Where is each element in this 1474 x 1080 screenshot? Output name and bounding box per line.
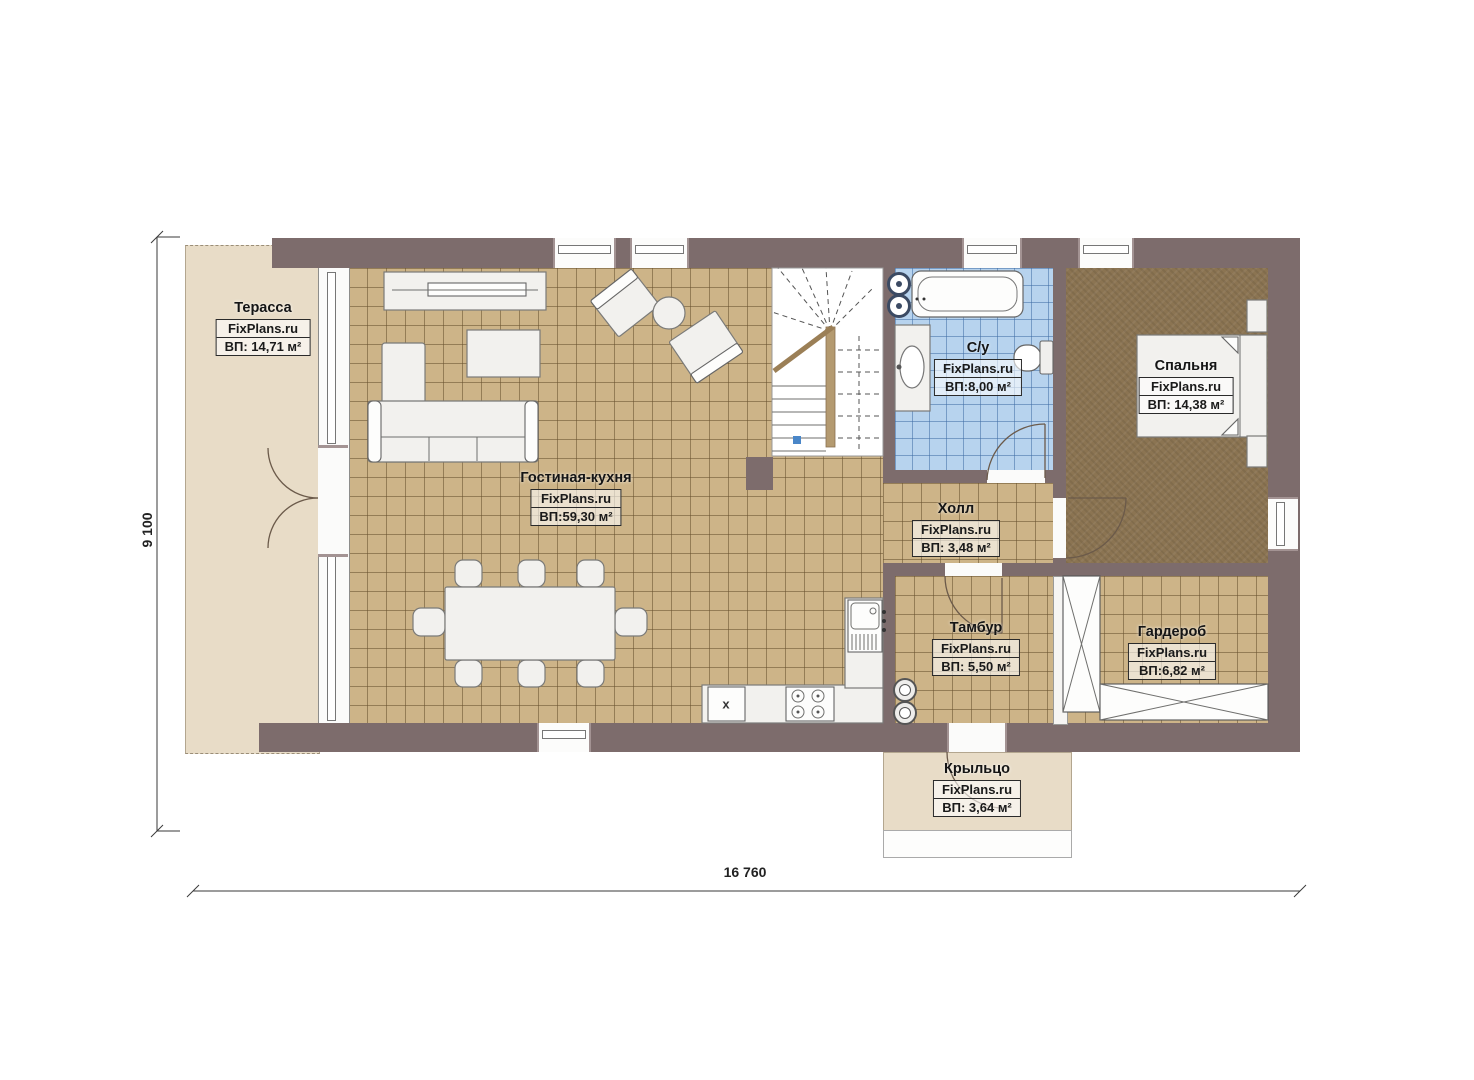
staircase: [772, 268, 883, 456]
room-info-box: FixPlans.ru ВП:59,30 м²: [530, 489, 621, 526]
room-name: Гардероб: [1128, 624, 1216, 640]
room-info-box: FixPlans.ru ВП: 14,71 м²: [216, 319, 311, 356]
room-name: Терасса: [216, 300, 311, 316]
room-info-box: FixPlans.ru ВП: 3,48 м²: [912, 520, 1000, 557]
kitchen-sink: [848, 600, 886, 652]
room-label-bedroom: Спальня FixPlans.ru ВП: 14,38 м²: [1139, 358, 1234, 414]
brand-link: FixPlans.ru: [1140, 378, 1233, 396]
coffee-table: [467, 330, 540, 377]
room-name: Спальня: [1139, 358, 1234, 374]
dining-chair: [413, 608, 445, 636]
door-arc-bathroom: [987, 424, 1045, 480]
stair-start-marker: [793, 436, 801, 444]
room-area: ВП: 5,50 м²: [933, 658, 1019, 675]
room-name: Крыльцо: [933, 761, 1021, 777]
nightstand-2: [1247, 436, 1267, 467]
room-area: ВП: 14,71 м²: [217, 338, 310, 355]
room-name: Гостиная-кухня: [520, 470, 631, 486]
dining-chair: [455, 560, 482, 587]
room-label-wardrobe: Гардероб FixPlans.ru ВП:6,82 м²: [1128, 624, 1216, 680]
room-info-box: FixPlans.ru ВП:6,82 м²: [1128, 643, 1216, 680]
brand-link: FixPlans.ru: [217, 320, 310, 338]
room-name: С/у: [934, 340, 1022, 356]
room-area: ВП:59,30 м²: [531, 508, 620, 525]
room-label-hall: Холл FixPlans.ru ВП: 3,48 м²: [912, 501, 1000, 557]
brand-link: FixPlans.ru: [1129, 644, 1215, 662]
dining-table-set: [413, 560, 647, 687]
column: [746, 457, 773, 490]
room-area: ВП: 14,38 м²: [1140, 396, 1233, 413]
room-area: ВП:6,82 м²: [1129, 662, 1215, 679]
plan-linework: [0, 0, 1474, 1080]
tv-console: [384, 272, 546, 310]
dimension-line-height: [151, 231, 180, 837]
armchair-1: [590, 269, 659, 337]
dining-chair: [615, 608, 647, 636]
dimension-height-label: 9 100: [139, 512, 155, 547]
brand-link: FixPlans.ru: [933, 640, 1019, 658]
brand-link: FixPlans.ru: [913, 521, 999, 539]
dining-chair: [518, 560, 545, 587]
room-info-box: FixPlans.ru ВП: 5,50 м²: [932, 639, 1020, 676]
room-label-living-kitchen: Гостиная-кухня FixPlans.ru ВП:59,30 м²: [520, 470, 631, 526]
closet-vertical: [1063, 576, 1100, 712]
room-label-bathroom: С/у FixPlans.ru ВП:8,00 м²: [934, 340, 1022, 396]
dining-chair: [455, 660, 482, 687]
door-arc-terrace: [268, 448, 318, 548]
room-info-box: FixPlans.ru ВП: 14,38 м²: [1139, 377, 1234, 414]
dimension-width-label: 16 760: [724, 864, 767, 880]
sofa: [368, 401, 538, 462]
dining-table: [445, 587, 615, 660]
room-name: Тамбур: [932, 620, 1020, 636]
brand-link: FixPlans.ru: [531, 490, 620, 508]
dining-chair: [577, 660, 604, 687]
room-label-porch: Крыльцо FixPlans.ru ВП: 3,64 м²: [933, 761, 1021, 817]
floor-plan-canvas: Терасса FixPlans.ru ВП: 14,71 м² Гостина…: [0, 0, 1474, 1080]
room-name: Холл: [912, 501, 1000, 517]
room-area: ВП: 3,64 м²: [934, 799, 1020, 816]
brand-link: FixPlans.ru: [935, 360, 1021, 378]
stair-divider: [826, 327, 835, 447]
cabinet-x-marker: х: [722, 697, 729, 712]
brand-link: FixPlans.ru: [934, 781, 1020, 799]
closet-horizontal: [1100, 684, 1268, 720]
door-arc-bedroom: [1066, 498, 1126, 558]
washer-stack: [894, 679, 916, 724]
bathtub: [912, 271, 1023, 317]
room-label-tambur: Тамбур FixPlans.ru ВП: 5,50 м²: [932, 620, 1020, 676]
vanity-sink: [895, 325, 930, 411]
room-area: ВП:8,00 м²: [935, 378, 1021, 395]
side-table: [653, 297, 685, 329]
dimension-line-width: [187, 885, 1306, 897]
dining-chair: [577, 560, 604, 587]
room-info-box: FixPlans.ru ВП:8,00 м²: [934, 359, 1022, 396]
stove: [786, 687, 834, 721]
nightstand-1: [1247, 300, 1267, 332]
room-label-terrace: Терасса FixPlans.ru ВП: 14,71 м²: [216, 300, 311, 356]
dining-chair: [518, 660, 545, 687]
room-area: ВП: 3,48 м²: [913, 539, 999, 556]
room-info-box: FixPlans.ru ВП: 3,64 м²: [933, 780, 1021, 817]
